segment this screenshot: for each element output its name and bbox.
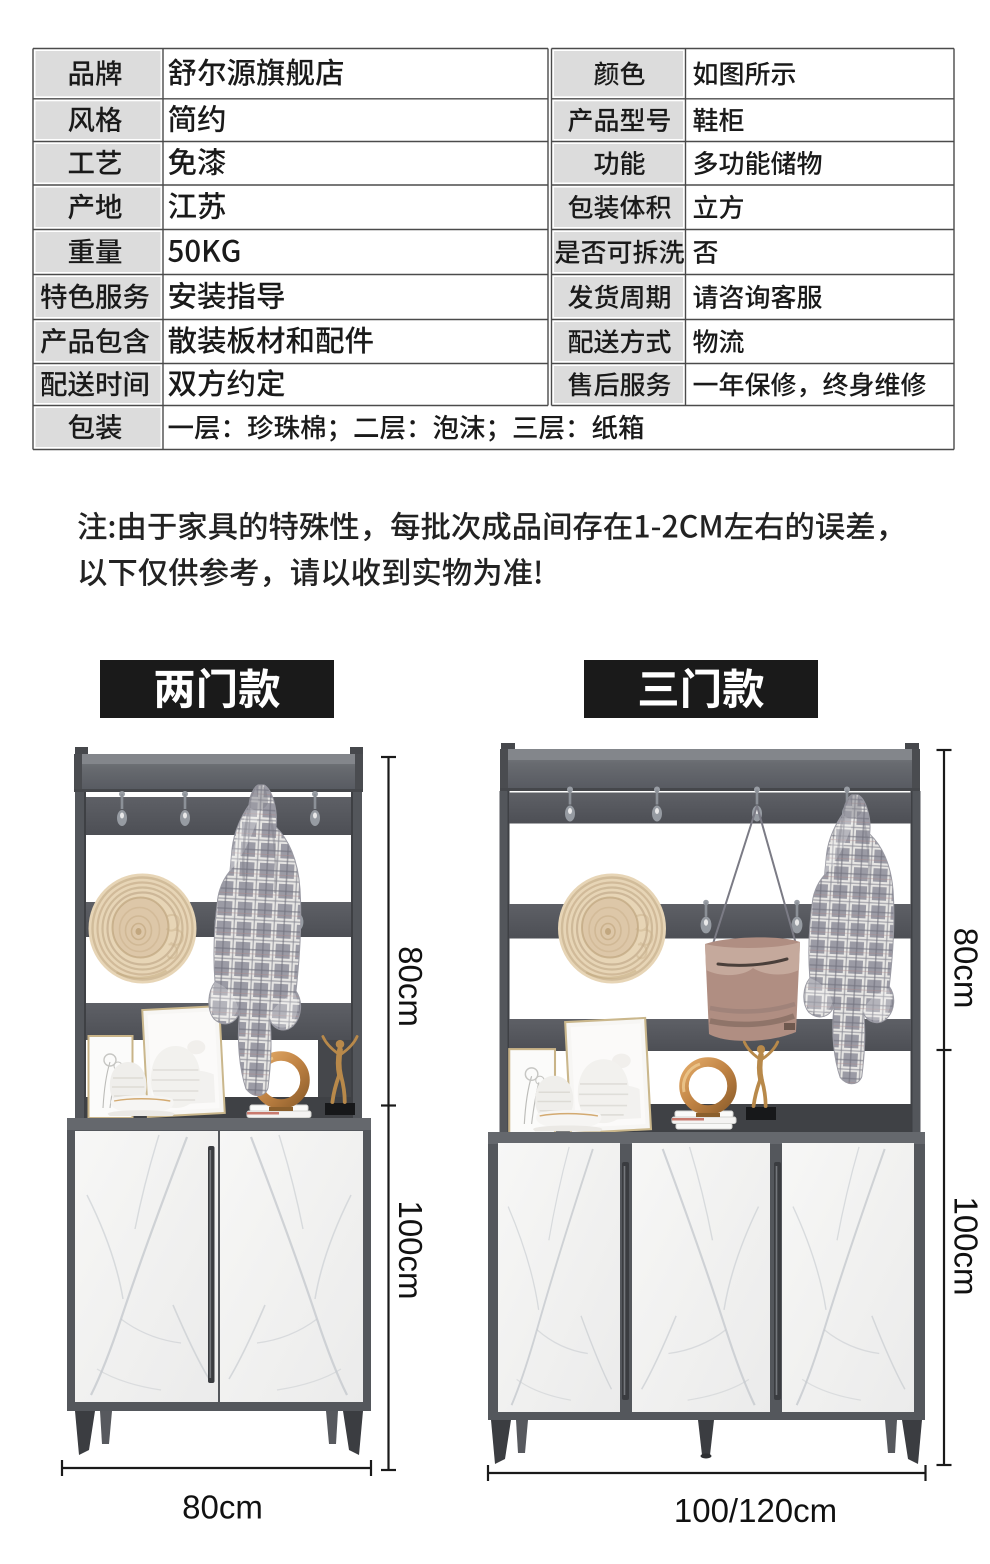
svg-text:80cm: 80cm xyxy=(948,928,985,1009)
svg-text:100cm: 100cm xyxy=(948,1196,985,1295)
svg-text:100/120cm: 100/120cm xyxy=(674,1492,837,1529)
svg-text:80cm: 80cm xyxy=(182,1489,263,1526)
svg-text:100cm: 100cm xyxy=(392,1200,429,1299)
svg-text:80cm: 80cm xyxy=(392,946,429,1027)
